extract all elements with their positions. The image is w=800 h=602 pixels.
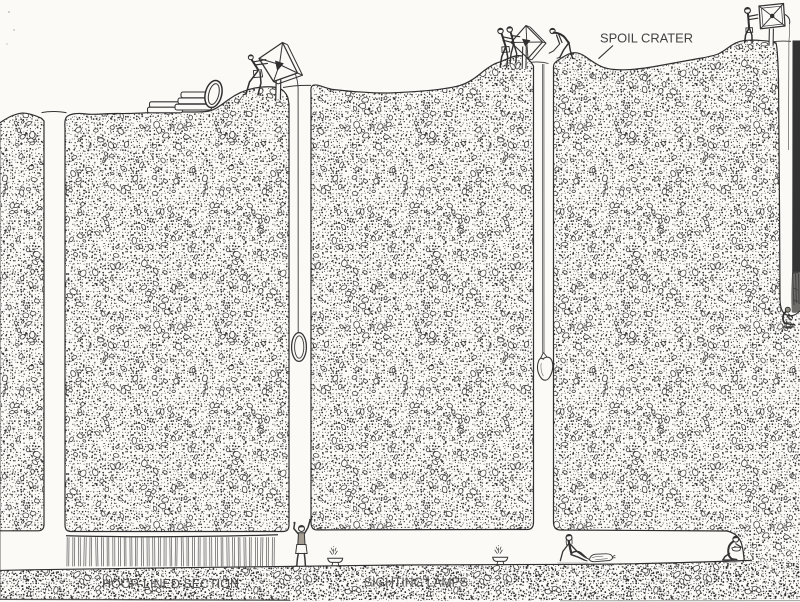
svg-text:SIGHTING LAMPS: SIGHTING LAMPS [364,576,468,590]
svg-text:HOOP-LINED SECTION: HOOP-LINED SECTION [102,577,239,591]
svg-text:SPOIL CRATER: SPOIL CRATER [600,32,693,46]
